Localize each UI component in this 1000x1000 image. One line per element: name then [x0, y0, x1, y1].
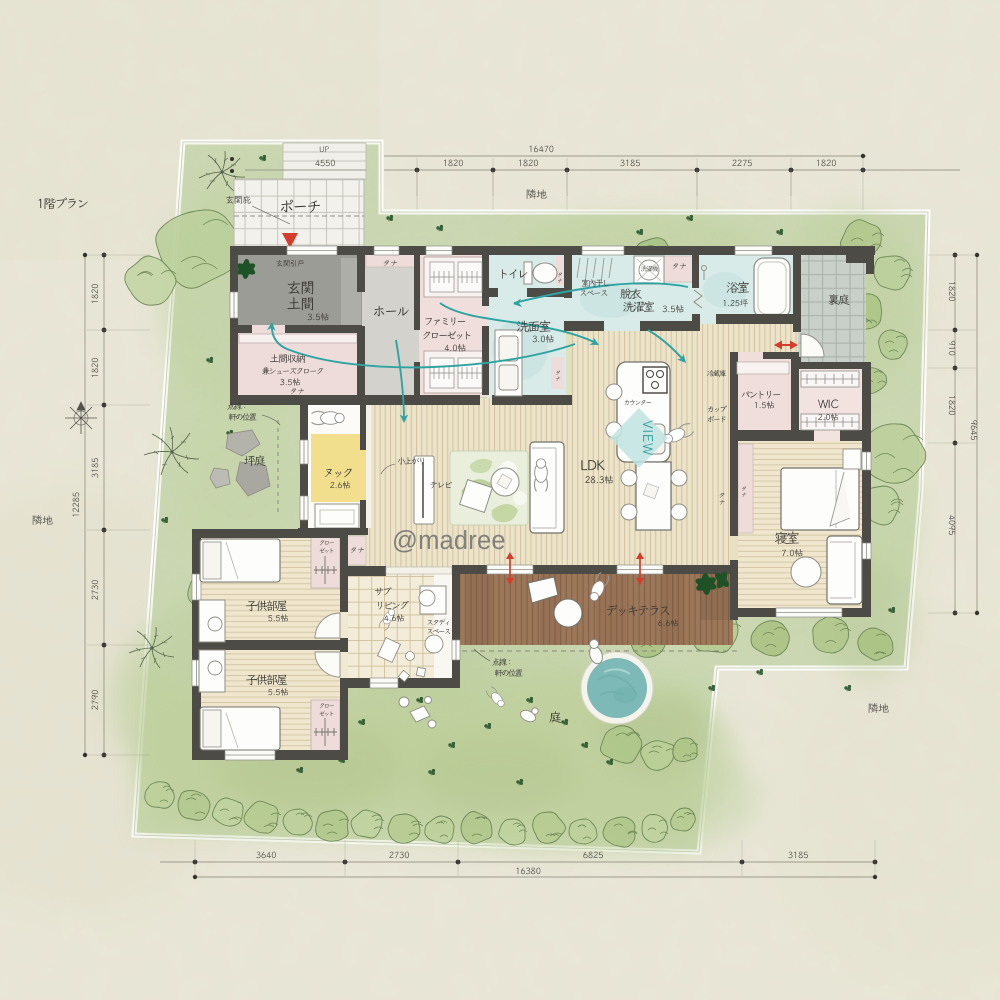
svg-text:@madree: @madree [392, 527, 506, 555]
